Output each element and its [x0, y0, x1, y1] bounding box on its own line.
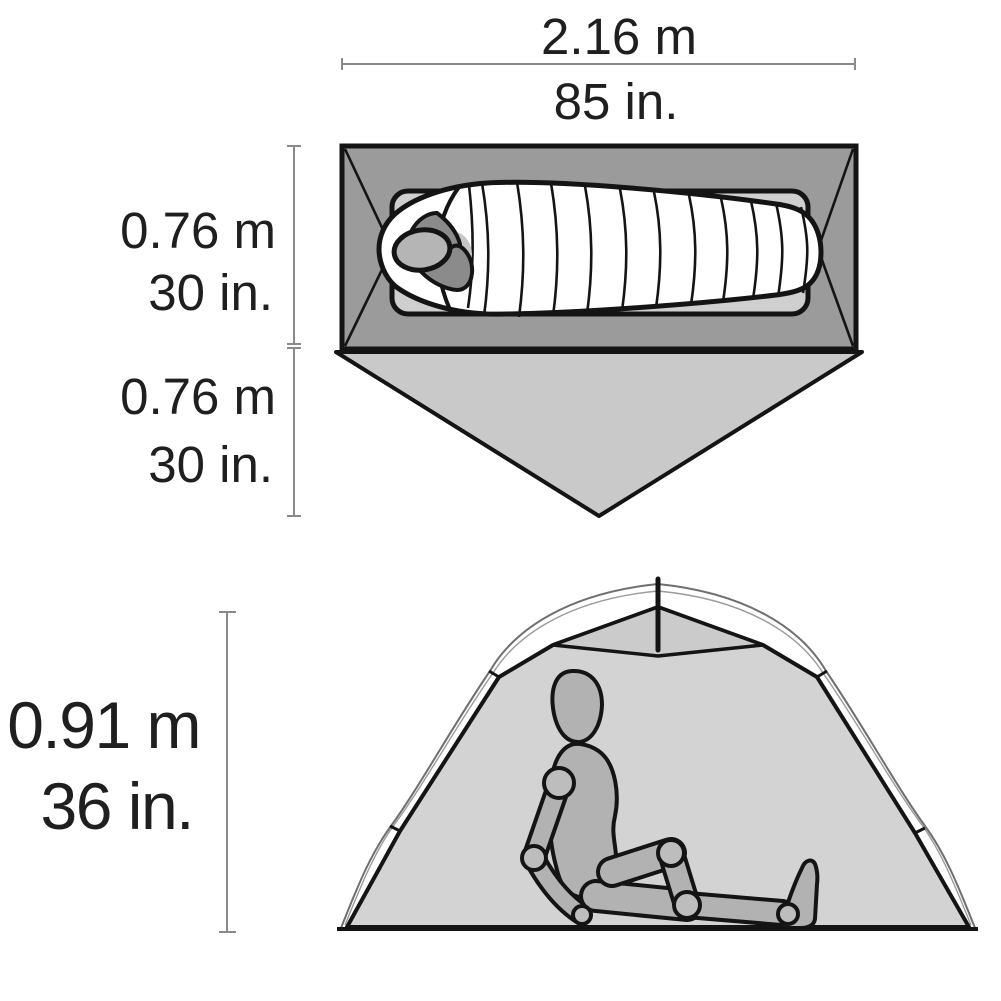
svg-text:0.91 m: 0.91 m — [7, 688, 200, 762]
svg-text:85 in.: 85 in. — [554, 73, 679, 130]
svg-text:0.76 m: 0.76 m — [120, 202, 276, 259]
svg-text:30 in.: 30 in. — [148, 436, 273, 493]
svg-text:2.16 m: 2.16 m — [541, 8, 697, 65]
svg-text:30 in.: 30 in. — [148, 264, 273, 321]
svg-text:36 in.: 36 in. — [41, 769, 193, 843]
svg-text:0.76 m: 0.76 m — [120, 368, 276, 425]
